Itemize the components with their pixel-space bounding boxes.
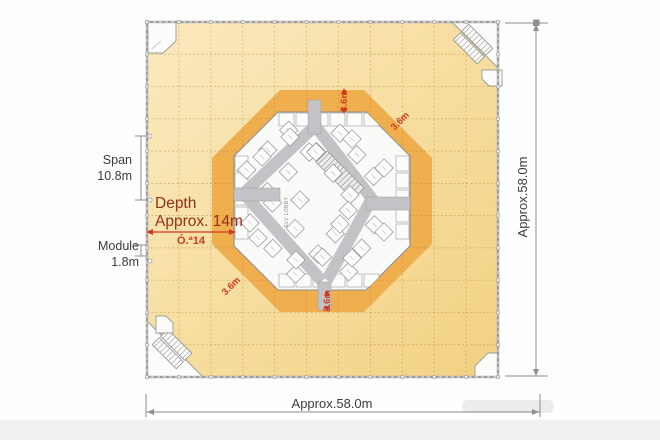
band-dim-top-value: 3.6m	[339, 90, 350, 112]
corridor-west	[234, 188, 280, 201]
floor-plan-diagram: ELV LOBBY Span 10.8m Depth Approx. 14m Ó…	[0, 0, 660, 440]
span-value: 10.8m	[97, 169, 132, 183]
floor-plate: ELV LOBBY	[145, 20, 502, 378]
band-dimension-bottom: 3.6m	[322, 290, 333, 312]
bottom-strip	[0, 420, 660, 440]
floor-plan-page: ELV LOBBY Span 10.8m Depth Approx. 14m Ó…	[0, 0, 660, 440]
span-label: Span	[103, 153, 132, 167]
bottom-dimension-value: Approx.58.0m	[292, 396, 373, 411]
band-dimension-top: 3.6m	[339, 88, 350, 114]
depth-label: Depth	[155, 195, 196, 212]
corridor-east	[366, 197, 410, 210]
depth-arrow-label: Ó.ª14	[177, 234, 206, 247]
corridor-north	[308, 100, 321, 134]
module-value: 1.8m	[111, 255, 139, 269]
module-label: Module	[98, 239, 139, 253]
elv-lobby-label: ELV LOBBY	[284, 196, 290, 227]
band-dim-bottom-value: 3.6m	[322, 290, 333, 312]
right-dimension-value: Approx.58.0m	[515, 157, 530, 238]
depth-value: Approx. 14m	[155, 213, 243, 230]
